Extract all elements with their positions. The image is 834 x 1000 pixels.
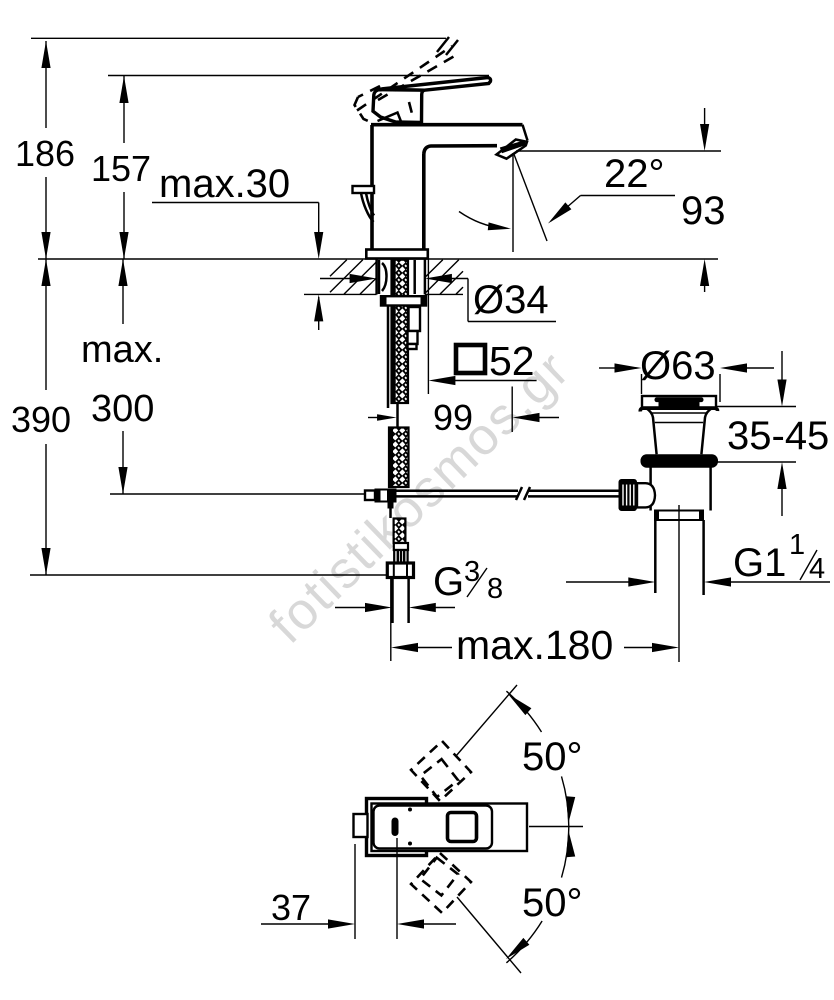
svg-text:37: 37 [271, 887, 311, 928]
svg-text:50°: 50° [522, 881, 583, 925]
svg-text:390: 390 [11, 399, 71, 440]
svg-text:G: G [433, 560, 464, 604]
svg-text:Ø63: Ø63 [640, 344, 716, 388]
svg-text:186: 186 [15, 133, 75, 174]
svg-text:G1: G1 [733, 541, 786, 585]
svg-text:Ø34: Ø34 [473, 278, 549, 322]
svg-text:1: 1 [789, 529, 805, 561]
svg-text:max.30: max.30 [159, 162, 290, 206]
svg-text:22°: 22° [604, 152, 665, 196]
svg-text:8: 8 [487, 573, 503, 605]
svg-text:300: 300 [91, 388, 154, 430]
svg-text:157: 157 [91, 148, 151, 189]
svg-text:max.: max. [81, 329, 163, 371]
svg-text:4: 4 [809, 553, 825, 585]
svg-text:35-45: 35-45 [727, 414, 829, 458]
svg-text:93: 93 [681, 189, 726, 233]
svg-text:50°: 50° [522, 735, 583, 779]
svg-text:3: 3 [464, 556, 480, 588]
svg-text:max.180: max.180 [456, 622, 613, 668]
svg-text:52: 52 [489, 338, 535, 384]
svg-text:99: 99 [433, 397, 473, 438]
